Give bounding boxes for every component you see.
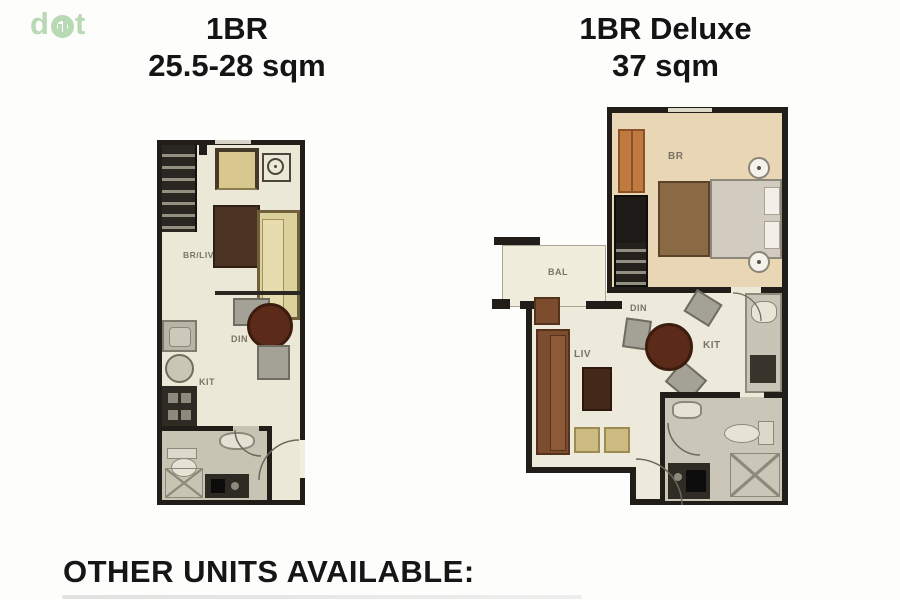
- bathroom-sink: [672, 401, 702, 419]
- bathroom-door-opening: [233, 426, 259, 431]
- dining-chair: [257, 345, 290, 380]
- unit2-heading: 1BR Deluxe 37 sqm: [518, 10, 813, 84]
- toilet: [724, 424, 760, 443]
- other-units-heading: OTHER UNITS AVAILABLE:: [63, 554, 475, 590]
- wall: [267, 426, 272, 505]
- unit2-area: 37 sqm: [518, 47, 813, 84]
- kitchen-counter: [745, 293, 782, 393]
- balcony-wall: [494, 237, 540, 245]
- room-label-br: BR: [668, 151, 683, 162]
- bedside-lamp-icon: [748, 157, 770, 179]
- closet-shelves: [614, 195, 648, 287]
- fan-icon: [267, 158, 284, 175]
- room-label-bal: BAL: [548, 267, 568, 277]
- building-icon: [51, 15, 74, 38]
- wall: [526, 303, 532, 473]
- ottoman: [574, 427, 600, 453]
- ottoman: [604, 427, 630, 453]
- unit1-title: 1BR: [118, 10, 356, 47]
- bathroom-sink: [219, 432, 255, 450]
- kitchen-range: [162, 386, 197, 428]
- floorplan-1br: BR/LIV DIN KIT: [157, 140, 305, 505]
- sofa: [536, 329, 570, 455]
- floorplan-1br-deluxe: BR BAL LIV DIN KIT: [490, 105, 792, 510]
- side-table: [262, 153, 291, 182]
- pillow: [764, 187, 780, 215]
- wall: [782, 107, 788, 505]
- closet-shelves: [162, 145, 197, 232]
- room-label-kit: KIT: [703, 340, 721, 351]
- room-label-din: DIN: [630, 303, 647, 313]
- wardrobe: [618, 129, 645, 193]
- entry-door-opening: [300, 440, 305, 478]
- balcony-wall: [520, 301, 534, 309]
- sofa-corner: [534, 297, 560, 325]
- room-label-br-liv: BR/LIV: [183, 250, 214, 260]
- dot-logo: d t: [30, 8, 86, 39]
- divider-wall: [215, 291, 300, 295]
- wall: [764, 392, 788, 398]
- logo-letter-t: t: [75, 8, 86, 39]
- kitchen-counter: [162, 320, 197, 352]
- bedside-lamp-icon: [748, 251, 770, 273]
- wall: [526, 467, 636, 473]
- wall: [199, 144, 207, 155]
- balcony-wall: [586, 301, 622, 309]
- logo-letter-d: d: [30, 8, 50, 39]
- window-opening: [215, 140, 251, 144]
- coffee-table: [582, 367, 612, 411]
- bath-vanity: [205, 474, 249, 498]
- pillow: [764, 221, 780, 249]
- wall: [660, 392, 740, 398]
- armchair: [215, 148, 259, 190]
- cropped-text-line: [62, 595, 582, 599]
- unit1-area: 25.5-28 sqm: [118, 47, 356, 84]
- shower-area: [165, 468, 203, 498]
- window-opening: [668, 108, 712, 112]
- room-label-din: DIN: [231, 334, 248, 344]
- wall: [157, 500, 305, 505]
- dining-table: [247, 303, 293, 349]
- room-label-kit: KIT: [199, 377, 215, 387]
- wall: [607, 107, 612, 293]
- bed-rug: [213, 205, 260, 268]
- wall: [660, 392, 665, 501]
- kitchen-sink: [165, 354, 194, 383]
- dining-table: [645, 323, 693, 371]
- unit1-heading: 1BR 25.5-28 sqm: [118, 10, 356, 84]
- toilet-tank: [758, 421, 774, 445]
- room-label-liv: LIV: [574, 349, 591, 360]
- bed-headboard: [658, 181, 710, 257]
- floorplan-flyer: d t 1BR 25.5-28 sqm 1BR Deluxe 37 sqm BR…: [0, 0, 900, 600]
- balcony-wall: [492, 299, 510, 309]
- shower-area: [730, 453, 780, 497]
- unit2-title: 1BR Deluxe: [518, 10, 813, 47]
- bath-vanity: [668, 463, 710, 499]
